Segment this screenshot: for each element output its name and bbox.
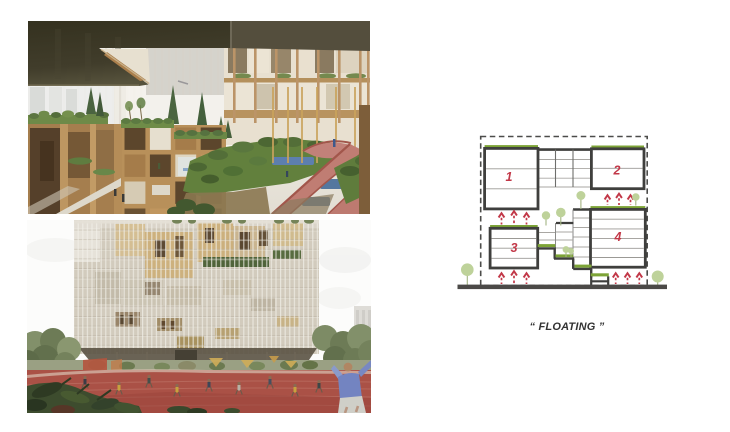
svg-text:“ FLOATING ”: “ FLOATING ” xyxy=(530,321,605,333)
svg-text:3: 3 xyxy=(511,241,518,255)
svg-text:1: 1 xyxy=(506,170,513,184)
svg-text:4: 4 xyxy=(614,230,622,244)
svg-text:2: 2 xyxy=(613,164,621,178)
